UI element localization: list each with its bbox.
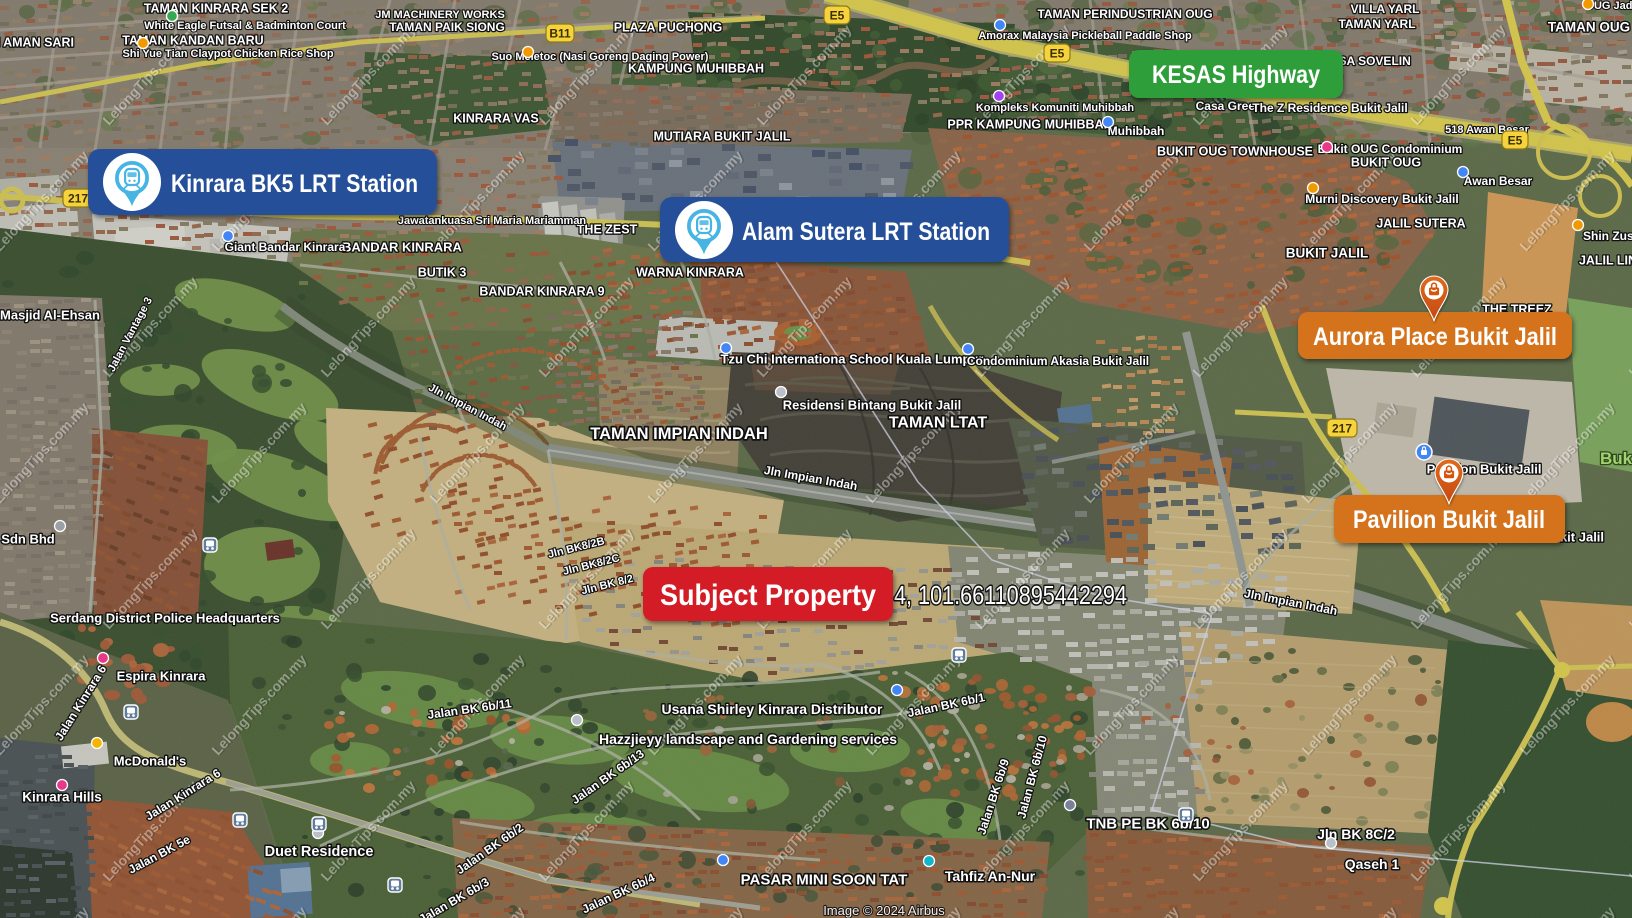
svg-text:JALIL SUTERA: JALIL SUTERA [1376,216,1465,230]
svg-text:BUTIK 3: BUTIK 3 [418,265,467,279]
svg-text:BANDAR KINRARA: BANDAR KINRARA [342,240,462,255]
svg-text:PLAZA PUCHONG: PLAZA PUCHONG [614,20,723,34]
svg-text:Espira Kinrara: Espira Kinrara [117,669,207,684]
svg-text:PASAR MINI SOON TAT: PASAR MINI SOON TAT [741,871,908,888]
svg-text:217: 217 [1332,422,1352,436]
svg-text:Image © 2024 Airbus: Image © 2024 Airbus [823,903,945,918]
svg-text:TAMAN LTAT: TAMAN LTAT [889,415,988,432]
svg-text:Murni Discovery Bukit Jalil: Murni Discovery Bukit Jalil [1305,192,1458,206]
svg-text:TAMAN PAIK SIONG: TAMAN PAIK SIONG [389,20,505,34]
svg-text:Sdn Bhd: Sdn Bhd [1,532,54,547]
svg-text:Bukit OUG Condominium: Bukit OUG Condominium [1318,142,1463,156]
svg-text:Shi Yue Tian Claypot Chicken R: Shi Yue Tian Claypot Chicken Rice Shop [122,48,333,60]
svg-text:Jawatankuasa Sri Maria Mariamm: Jawatankuasa Sri Maria Mariamman [398,215,587,227]
svg-text:TAMAN OUG: TAMAN OUG [1548,20,1630,35]
svg-text:BANDAR KINRARA 9: BANDAR KINRARA 9 [479,284,604,298]
svg-text:PPR KAMPUNG MUHIBBAH: PPR KAMPUNG MUHIBBAH [947,117,1112,131]
svg-text:Usana Shirley Kinrara Distribu: Usana Shirley Kinrara Distributor [662,701,884,717]
svg-text:Masjid Al-Ehsan: Masjid Al-Ehsan [0,308,100,323]
svg-text:TAMAN KINRARA SEK 2: TAMAN KINRARA SEK 2 [144,1,288,15]
svg-text:The Z Residence Bukit Jalil: The Z Residence Bukit Jalil [1252,101,1407,115]
svg-text:Tzu Chi Internationa School K: Tzu Chi Internationa School Kuala Lumpur [721,352,984,367]
svg-text:4, 101.66110895442294: 4, 101.66110895442294 [894,580,1127,610]
svg-text:Duet Residence: Duet Residence [265,844,374,860]
svg-text:E5: E5 [1508,134,1523,148]
svg-text:White Eagle Futsal & Badminton: White Eagle Futsal & Badminton Court [144,20,346,32]
svg-text:Residensi Bintang Bukit Jalil: Residensi Bintang Bukit Jalil [783,398,961,413]
svg-text:WARNA KINRARA: WARNA KINRARA [636,265,744,279]
svg-text:Alam Sutera LRT Station: Alam Sutera LRT Station [742,218,990,246]
svg-text:Condominium Akasia Bukit Jalil: Condominium Akasia Bukit Jalil [967,354,1149,368]
svg-text:Pavilion Bukit Jalil: Pavilion Bukit Jalil [1353,506,1545,534]
svg-text:MUTIARA BUKIT JALIL: MUTIARA BUKIT JALIL [653,129,790,143]
svg-text:217: 217 [68,192,88,206]
svg-text:BUKIT OUG: BUKIT OUG [1351,155,1421,169]
svg-text:BUKIT OUG TOWNHOUSE: BUKIT OUG TOWNHOUSE [1157,144,1313,158]
svg-text:Amorax Malaysia Pickleball Pad: Amorax Malaysia Pickleball Paddle Shop [978,30,1192,42]
svg-text:Qaseh 1: Qaseh 1 [1345,856,1400,872]
svg-text:BUKIT JALIL: BUKIT JALIL [1286,246,1369,261]
svg-text:Serdang District Police Headqu: Serdang District Police Headquarters [50,611,280,626]
svg-text:Kinrara BK5 LRT Station: Kinrara BK5 LRT Station [171,170,418,198]
svg-text:E5: E5 [830,9,845,23]
svg-text:Hazzjieyy landscape and Garden: Hazzjieyy landscape and Gardening servic… [599,731,897,747]
svg-text:kit Jalil: kit Jalil [1560,530,1604,545]
svg-text:Awan Besar: Awan Besar [1464,174,1533,188]
svg-text:B11: B11 [549,27,571,41]
svg-text:VILLA YARL: VILLA YARL [1351,2,1420,16]
svg-text:AN AMAN SARI: AN AMAN SARI [0,35,74,49]
svg-text:McDonald's: McDonald's [114,754,186,769]
svg-text:Aurora Place Bukit Jalil: Aurora Place Bukit Jalil [1313,323,1557,351]
svg-text:TAMAN PERINDUSTRIAN OUG: TAMAN PERINDUSTRIAN OUG [1037,7,1212,21]
svg-text:Muhibbah: Muhibbah [1108,124,1165,138]
svg-text:Kompleks Komuniti Muhibbah: Kompleks Komuniti Muhibbah [976,102,1135,114]
svg-text:JM MACHINERY WORKS: JM MACHINERY WORKS [375,9,505,21]
svg-text:JALIL LIN: JALIL LIN [1579,253,1632,267]
svg-text:KAMPUNG MUHIBBAH: KAMPUNG MUHIBBAH [628,61,764,75]
svg-text:Tahfiz An-Nur: Tahfiz An-Nur [945,868,1036,884]
svg-text:Subject Property: Subject Property [660,579,876,612]
svg-text:Shin Zush: Shin Zush [1583,229,1632,243]
svg-text:E5: E5 [1050,47,1065,61]
svg-text:KINRARA VAS: KINRARA VAS [453,111,538,125]
svg-text:Bukit: Bukit [1600,449,1632,468]
svg-text:TAMAN IMPIAN INDAH: TAMAN IMPIAN INDAH [590,425,768,443]
svg-text:Giant Bandar Kinrara: Giant Bandar Kinrara [225,240,346,254]
svg-text:TAMAN YARL: TAMAN YARL [1338,17,1415,31]
svg-text:Kinrara Hills: Kinrara Hills [22,790,102,805]
svg-text:KESAS Highway: KESAS Highway [1152,61,1320,89]
